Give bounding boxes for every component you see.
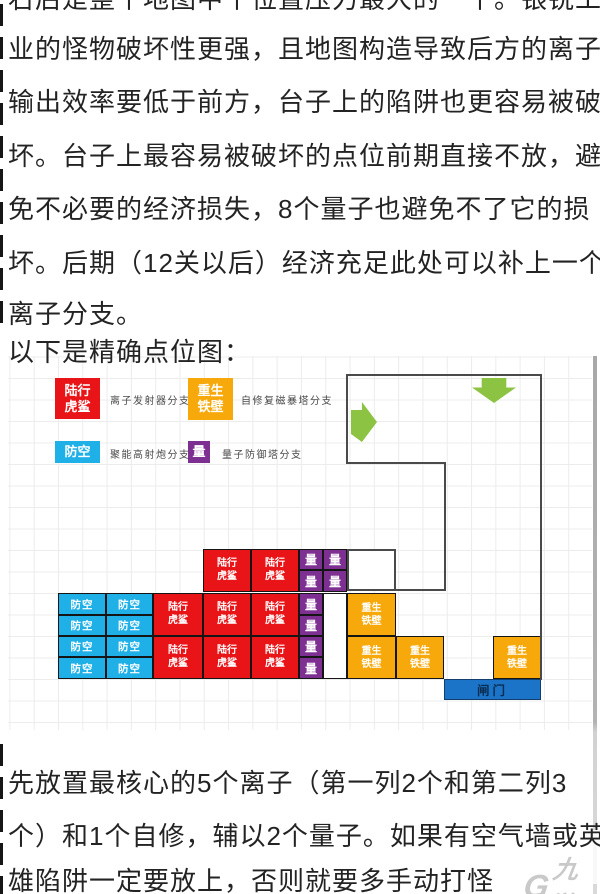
map-tile: 陆行 虎鲨 [251, 549, 299, 592]
article-page: G 九游 右后是整个地图中个位置压力最大的一个。银锐工业的怪物破坏性更强，且地图… [0, 0, 600, 894]
article-text-line: 雄陷阱一定要放上，否则就要多手动打怪 [8, 866, 494, 894]
map-tile: 防空 [58, 657, 106, 679]
legend-swatch: 重生 铁壁 [188, 378, 233, 420]
map-tile: 陆行 虎鲨 [251, 636, 299, 679]
map-tile: 陆行 虎鲨 [251, 593, 299, 636]
article-text-line: 右后是整个地图中个位置压力最大的一个。银锐工 [8, 0, 600, 14]
map-tile: 量 [299, 636, 323, 657]
page-edge-dash [0, 810, 3, 832]
page-edge-dash [0, 843, 3, 865]
map-tile: 防空 [106, 657, 153, 679]
legend-label: 量子防御塔分支 [222, 446, 303, 461]
article-text-line: 以下是精确点位图： [8, 337, 251, 367]
map-tile: 陆行 虎鲨 [153, 636, 203, 679]
page-edge-dash [0, 876, 3, 894]
map-outline-segment [347, 374, 542, 376]
map-tile: 防空 [58, 615, 106, 636]
legend-swatch: 陆行 虎鲨 [55, 378, 100, 419]
map-tile: 防空 [106, 615, 153, 636]
page-edge-dash [0, 777, 3, 799]
map-tile: 陆行 虎鲨 [203, 593, 251, 636]
map-tile: 重生 铁壁 [493, 636, 541, 679]
map-tile: 陆行 虎鲨 [203, 636, 251, 679]
map-tile: 陆行 虎鲨 [153, 593, 203, 636]
page-edge-dash [0, 169, 3, 191]
map-tile [347, 549, 396, 591]
page-edge-dash [0, 268, 3, 290]
article-text-line: 个）和1个自修，辅以2个量子。如果有空气墙或英 [8, 821, 600, 851]
map-tile: 量 [299, 615, 323, 636]
map-outline-segment [540, 374, 542, 680]
article-text-line: 离子分支。 [8, 299, 143, 329]
map-tile: 量 [299, 570, 323, 592]
page-edge-dash [0, 4, 3, 26]
article-text-line: 免不必要的经济损失，8个量子也避免不了它的损 [8, 194, 590, 224]
page-edge-dash [0, 744, 3, 766]
map-tile [323, 593, 347, 679]
map-outline-segment [346, 462, 446, 464]
legend-label: 离子发射器分支 [110, 392, 191, 407]
gate-tile: 闸门 [444, 679, 541, 700]
legend-swatch: 量 [188, 441, 210, 463]
right-edge-line [593, 356, 597, 894]
page-edge-dash [0, 136, 3, 158]
map-tile: 防空 [58, 636, 106, 657]
page-edge-dash [0, 301, 3, 323]
map-tile: 量 [299, 549, 323, 570]
page-edge-dash [0, 70, 3, 92]
page-edge-dash [0, 103, 3, 125]
watermark-text: 九游 [546, 850, 600, 894]
watermark-logo: G 九游 [524, 850, 600, 894]
article-text-line: 输出效率要低于前方，台子上的陷阱也更容易被破 [8, 87, 600, 117]
legend-label: 自修复磁暴塔分支 [241, 392, 333, 407]
map-tile: 重生 铁壁 [347, 593, 396, 636]
article-text-line: 业的怪物破坏性更强，且地图构造导致后方的离子 [8, 34, 600, 64]
map-tile: 重生 铁壁 [396, 636, 444, 679]
map-tile: 量 [323, 570, 347, 592]
map-outline-segment [346, 374, 348, 464]
legend-label: 聚能高射炮分支 [110, 446, 191, 461]
page-edge-dash [0, 37, 3, 59]
nine-game-logo-icon: G [521, 868, 551, 894]
map-tile: 量 [299, 657, 323, 679]
map-outline-segment [396, 589, 446, 591]
article-text-line: 坏。台子上最容易被破坏的点位前期直接不放，避 [8, 141, 600, 171]
map-tile: 重生 铁壁 [347, 636, 396, 679]
map-tile: 量 [323, 549, 347, 570]
map-outline-segment [444, 462, 446, 591]
map-tile: 量 [299, 593, 323, 615]
page-edge-dash [0, 235, 3, 257]
map-tile: 防空 [58, 593, 106, 615]
map-tile: 防空 [106, 593, 153, 615]
article-text-line: 坏。后期（12关以后）经济充足此处可以补上一个 [8, 248, 600, 278]
legend-swatch: 防空 [55, 441, 100, 463]
map-tile: 陆行 虎鲨 [203, 549, 251, 592]
page-edge-dash [0, 202, 3, 224]
map-tile: 防空 [106, 636, 153, 657]
article-text-line: 先放置最核心的5个离子（第一列2个和第二列3 [8, 768, 567, 798]
